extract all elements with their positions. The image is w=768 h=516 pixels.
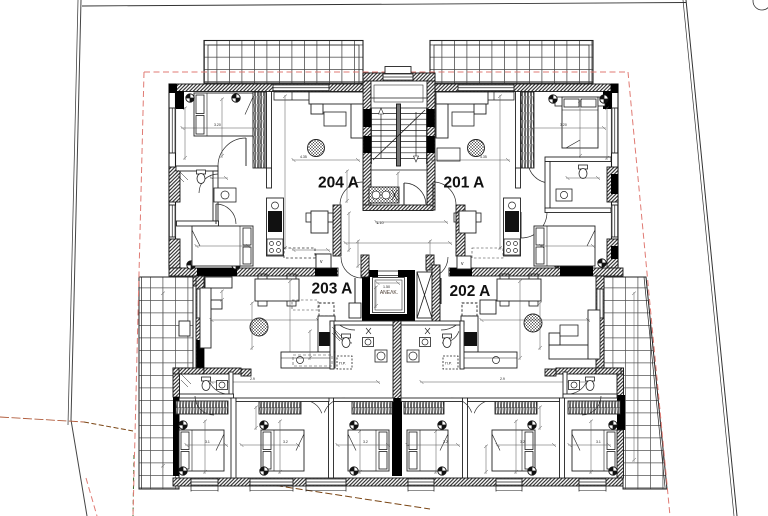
svg-text:204 A: 204 A bbox=[318, 175, 359, 192]
svg-text:3.20: 3.20 bbox=[214, 123, 221, 127]
svg-text:3.2: 3.2 bbox=[443, 440, 448, 444]
svg-text:3.2: 3.2 bbox=[363, 440, 368, 444]
svg-text:ANEΛK.: ANEΛK. bbox=[380, 290, 398, 296]
svg-text:4.35: 4.35 bbox=[480, 155, 487, 159]
svg-text:203 A: 203 A bbox=[312, 281, 353, 298]
svg-text:202 A: 202 A bbox=[450, 283, 491, 300]
svg-text:2.9: 2.9 bbox=[500, 377, 505, 381]
svg-text:1.50: 1.50 bbox=[383, 285, 390, 289]
svg-text:3.20: 3.20 bbox=[560, 123, 567, 127]
svg-text:3.2: 3.2 bbox=[283, 440, 288, 444]
svg-text:2.9: 2.9 bbox=[250, 377, 255, 381]
svg-text:201 A: 201 A bbox=[444, 175, 485, 192]
svg-text:3.2: 3.2 bbox=[520, 440, 525, 444]
svg-text:3.1: 3.1 bbox=[596, 440, 601, 444]
svg-text:Π.Ρ.: Π.Ρ. bbox=[339, 362, 346, 366]
svg-text:4.35: 4.35 bbox=[300, 155, 307, 159]
svg-text:Π.Ρ.: Π.Ρ. bbox=[445, 362, 452, 366]
svg-text:3.1: 3.1 bbox=[205, 440, 210, 444]
